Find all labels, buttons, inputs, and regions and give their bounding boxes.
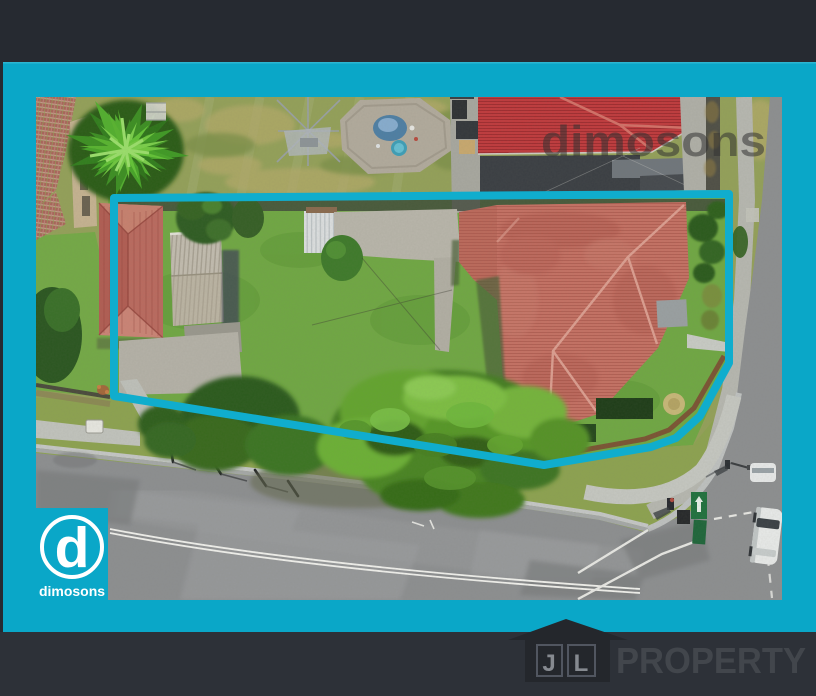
svg-text:dimosons: dimosons xyxy=(39,583,105,599)
svg-text:J: J xyxy=(542,650,555,677)
svg-text:d: d xyxy=(55,516,90,580)
svg-text:dimosons: dimosons xyxy=(541,117,766,166)
svg-text:PROPERTY: PROPERTY xyxy=(616,640,806,681)
svg-text:L: L xyxy=(574,650,589,677)
